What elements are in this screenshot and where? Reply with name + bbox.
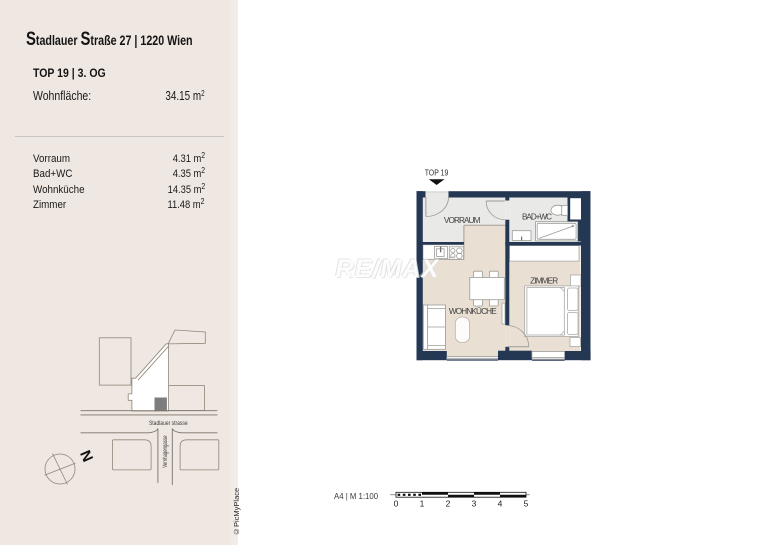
svg-text:TOP 19: TOP 19 — [425, 168, 449, 178]
svg-text:N: N — [76, 448, 96, 465]
svg-text:5: 5 — [524, 499, 529, 509]
svg-text:4: 4 — [498, 499, 503, 509]
svg-text:Vernhagengasse: Vernhagengasse — [162, 435, 169, 468]
svg-text:Stadlauer strasse: Stadlauer strasse — [149, 420, 188, 427]
svg-text:BAD+WC: BAD+WC — [522, 212, 552, 221]
svg-text:1: 1 — [420, 499, 425, 509]
svg-text:ZIMMER: ZIMMER — [530, 277, 558, 286]
svg-text:2: 2 — [446, 499, 451, 509]
svg-text:WOHNKÜCHE: WOHNKÜCHE — [449, 306, 497, 316]
svg-text:3: 3 — [472, 499, 477, 509]
svg-text:0: 0 — [394, 499, 399, 509]
svg-text:VORRAUM: VORRAUM — [444, 216, 481, 225]
